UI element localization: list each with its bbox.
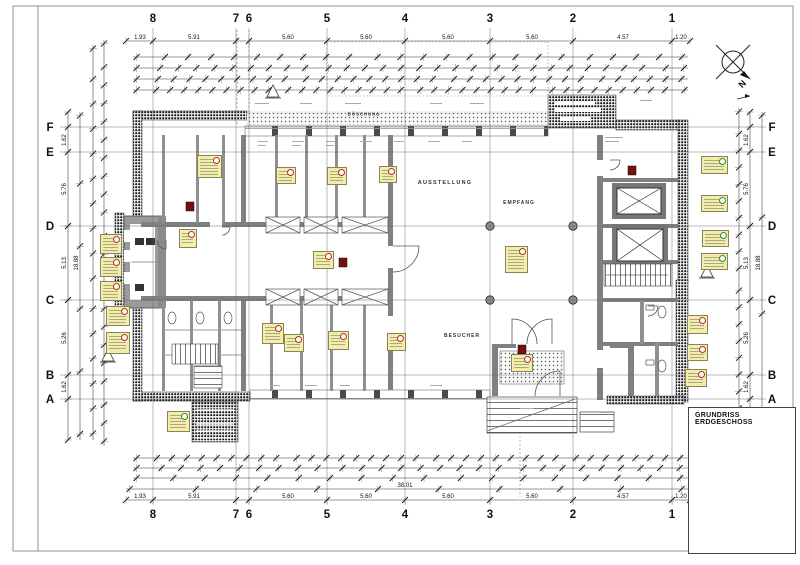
grid-col-label: 7 [233,13,239,25]
grid-row-label: A [46,394,54,406]
room-tag [284,334,304,352]
tag-number-circle-icon [719,158,726,165]
tag-number-circle-icon [213,157,220,164]
grid-row-label: D [768,221,776,233]
grid-col-label: 6 [246,509,252,521]
grid-col-label: 5 [324,13,331,25]
room-tag [167,411,190,432]
dim-label: 38.01 [397,483,413,489]
dim-label: 5.60 [442,494,454,500]
tag-number-circle-icon [113,236,120,243]
dim-label: 5.91 [188,35,200,41]
grid-col-label: 5 [324,509,331,521]
grid-col-label: 1 [669,13,676,25]
dim-label: 5.60 [360,35,372,41]
dim-label: 5.60 [360,494,372,500]
room-tag [687,315,708,334]
room-tag [106,332,130,354]
grid-col-label: 2 [570,13,576,25]
dim-label: 5.76 [62,183,68,195]
dim-label: 5.60 [282,35,294,41]
room-tag [387,333,406,351]
drawing-title: GRUNDRISS ERDGESCHOSS [695,412,795,426]
tag-number-circle-icon [295,336,302,343]
room-tag [100,257,122,277]
dim-label: 5.60 [442,35,454,41]
room-tag [685,369,707,387]
tag-number-circle-icon [720,232,727,239]
tag-number-circle-icon [121,334,128,341]
dim-label: 5.60 [526,494,538,500]
tag-number-circle-icon [699,346,706,353]
room-tag [701,156,728,174]
dim-label: 5.91 [188,494,200,500]
tag-number-circle-icon [340,333,347,340]
room-tag [327,167,347,185]
grid-col-label: 4 [402,13,409,25]
grid-row-label: C [768,295,776,307]
dim-label: 18.88 [756,255,762,271]
tag-number-circle-icon [121,308,128,315]
marker-square [186,202,194,211]
grid-col-label: 1 [669,509,676,521]
tag-number-circle-icon [519,248,526,255]
grid-col-label: 8 [150,509,157,521]
dim-label: 1.20 [675,35,687,41]
tag-number-circle-icon [113,259,120,266]
tag-number-circle-icon [699,317,706,324]
dim-label: 1.62 [62,134,68,146]
dim-label: 4.57 [617,494,629,500]
marker-square [339,258,347,267]
room-tag [505,246,528,273]
dim-label: 5.26 [744,332,750,344]
floor-plan-sheet: 8877665544332211FFEEDDCCBBAA1.935.915.60… [0,0,800,565]
room-label: EMPFANG [503,200,535,206]
dim-label: 1.93 [134,35,146,41]
tag-number-circle-icon [524,356,531,363]
dim-label: 1.93 [134,494,146,500]
room-tag [313,251,334,269]
title-block: GRUNDRISS ERDGESCHOSS [688,407,796,554]
grid-row-label: E [46,147,54,159]
tag-number-circle-icon [287,169,294,176]
tag-number-circle-icon [113,283,120,290]
grid-col-label: 8 [150,13,157,25]
grid-col-label: 7 [233,509,239,521]
grid-row-label: A [768,394,776,406]
room-label: BESUCHER [444,333,480,339]
room-tag [379,166,397,183]
dim-label: 1.62 [744,134,750,146]
room-tag [328,331,349,350]
room-tag [197,155,222,178]
room-label: BÖSCHUNG [348,112,381,117]
dim-label: 5.26 [62,332,68,344]
room-tag [687,344,708,361]
tag-number-circle-icon [188,231,195,238]
grid-col-label: 4 [402,509,409,521]
tag-number-circle-icon [325,253,332,260]
dim-label: 1.62 [62,381,68,393]
room-tag [100,281,122,301]
tag-number-circle-icon [698,371,705,378]
grid-col-label: 3 [487,13,493,25]
room-tag [106,306,130,326]
room-label: AUSSTELLUNG [418,180,472,186]
room-tag [701,253,728,270]
dim-label: 5.60 [526,35,538,41]
room-tag [701,195,728,212]
grid-row-label: B [768,370,776,382]
dim-label: 5.76 [744,183,750,195]
tag-number-circle-icon [181,413,188,420]
tag-number-circle-icon [338,169,345,176]
room-tag [262,323,284,344]
tag-number-circle-icon [719,255,726,262]
dim-label: 18.88 [74,255,80,271]
room-tag [702,230,729,247]
room-tag [100,234,122,254]
dim-label: 5.13 [62,257,68,269]
grid-row-label: B [46,370,54,382]
marker-square [518,345,526,354]
grid-col-label: 6 [246,13,252,25]
grid-col-label: 2 [570,509,576,521]
tag-number-circle-icon [275,325,282,332]
room-tag [511,354,533,372]
room-tag [276,167,296,184]
grid-row-label: F [768,122,775,134]
dim-label: 5.60 [282,494,294,500]
grid-col-label: 3 [487,509,493,521]
dim-label: 1.62 [744,381,750,393]
grid-row-label: C [46,295,54,307]
room-tag [179,229,197,248]
grid-row-label: F [46,122,53,134]
marker-square [628,166,636,175]
dim-label: 5.13 [744,257,750,269]
tag-number-circle-icon [397,335,404,342]
grid-row-label: E [768,147,776,159]
dim-label: 4.57 [617,35,629,41]
tag-number-circle-icon [719,197,726,204]
tag-number-circle-icon [388,168,395,175]
dim-label: 1.20 [675,494,687,500]
grid-row-label: D [46,221,54,233]
